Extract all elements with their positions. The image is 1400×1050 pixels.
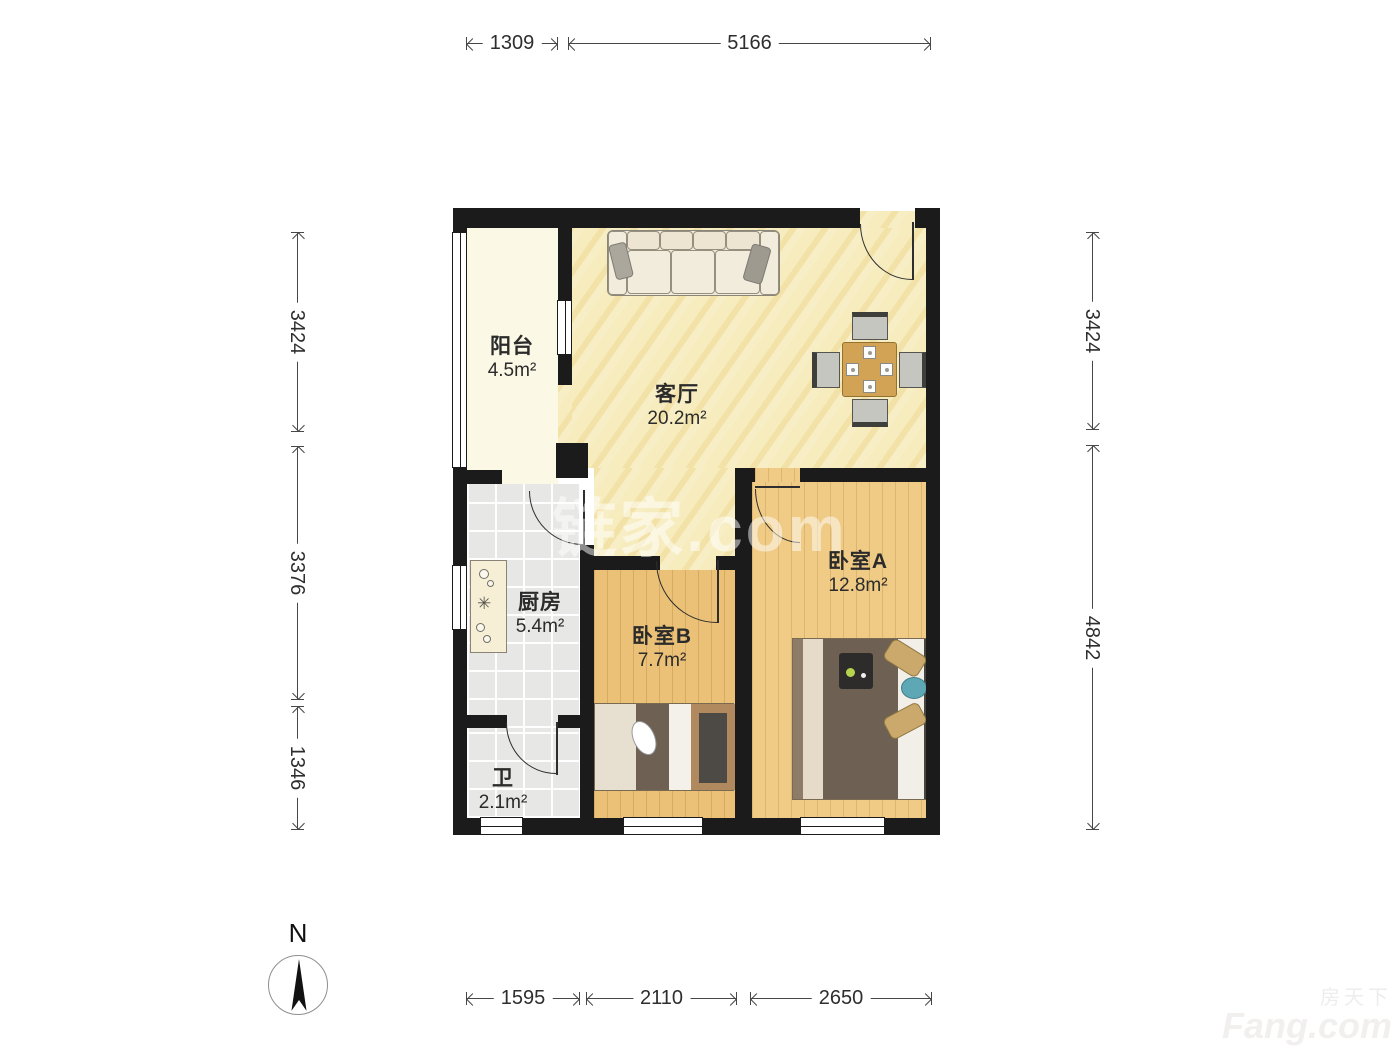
dining-chair-top <box>852 312 888 340</box>
window <box>623 817 703 835</box>
wall <box>594 556 660 570</box>
dining-chair-right <box>899 352 927 388</box>
dining-table <box>842 342 897 397</box>
bedroom-b-door-leaf <box>717 560 719 623</box>
dimension-value: 2650 <box>812 988 871 1008</box>
room-label-bedroom-a: 卧室A 12.8m² <box>828 545 888 597</box>
wall <box>926 208 940 835</box>
sink-icon <box>479 569 489 579</box>
room-label-balcony: 阳台 4.5m² <box>488 330 537 382</box>
room-label-bathroom: 卫 2.1m² <box>479 762 528 814</box>
room-name: 卧室B <box>632 620 692 650</box>
bed-blanket-fold <box>803 639 823 799</box>
bedroom-a-door-leaf <box>755 486 800 488</box>
dimension-value: 4842 <box>1082 608 1102 667</box>
watermark-bottom-right: 房天下 Fang.com <box>1222 988 1392 1044</box>
room-name: 客厅 <box>647 378 706 408</box>
north-arrow-icon <box>286 959 312 1013</box>
room-name: 卫 <box>479 762 528 792</box>
dimension-value: 3376 <box>287 544 307 603</box>
window <box>480 817 523 835</box>
dining-chair-bottom <box>852 399 888 427</box>
sofa <box>607 230 780 296</box>
balcony-passage-floor <box>558 383 572 445</box>
room-name: 卧室A <box>828 545 888 575</box>
room-area: 4.5m² <box>488 360 537 382</box>
room-label-bedroom-b: 卧室B 7.7m² <box>632 620 692 672</box>
double-bed <box>792 638 933 800</box>
watermark-cn: 房天下 <box>1222 988 1392 1008</box>
wall <box>558 715 594 728</box>
bathroom-door-leaf <box>556 722 558 775</box>
sink-icon <box>487 580 494 587</box>
window <box>800 817 885 835</box>
compass: N <box>268 918 328 1015</box>
wall <box>556 443 588 478</box>
wall <box>453 208 860 228</box>
room-name: 阳台 <box>488 330 537 360</box>
kitchen-door-leaf <box>583 490 585 545</box>
bed-blanket-fold <box>595 704 636 790</box>
sink-icon <box>483 635 491 643</box>
room-area: 2.1m² <box>479 792 528 814</box>
single-bed <box>594 703 734 791</box>
dining-chair-left <box>812 352 840 388</box>
sofa-seat-cushion <box>671 250 715 294</box>
wall <box>558 355 572 385</box>
bed-sheet <box>669 704 691 790</box>
bed-footboard <box>793 639 803 799</box>
room-area: 5.4m² <box>516 616 565 638</box>
bedroom-a-door-threshold <box>755 468 800 482</box>
watermark-en: Fang.com <box>1222 1008 1392 1044</box>
floorplan-canvas: ✳ <box>0 0 1400 1050</box>
entrance-door-leaf <box>912 222 914 280</box>
stove-burner-icon: ✳ <box>477 594 491 614</box>
bed-round-cushion <box>901 677 927 699</box>
sink-icon <box>476 623 485 632</box>
wall <box>558 228 572 300</box>
dimension-value: 1346 <box>287 739 307 798</box>
bed-headboard <box>691 704 735 790</box>
dimension-value: 5166 <box>720 33 779 53</box>
wall <box>467 715 507 728</box>
wall <box>800 468 926 482</box>
sofa-seat-cushion <box>627 250 671 294</box>
place-setting <box>880 363 893 376</box>
window <box>452 565 467 630</box>
dimension-value: 1309 <box>483 33 542 53</box>
room-area: 12.8m² <box>828 575 888 597</box>
room-label-living: 客厅 20.2m² <box>647 378 706 430</box>
dimension-value: 2110 <box>633 988 690 1008</box>
window <box>557 300 572 355</box>
room-area: 7.7m² <box>632 650 692 672</box>
compass-circle <box>268 955 328 1015</box>
wall <box>735 468 752 818</box>
sofa-back-cushion <box>627 231 660 250</box>
sofa-back-cushion <box>693 231 726 250</box>
sofa-back-cushion <box>660 231 693 250</box>
wall <box>467 470 502 484</box>
dimension-value: 3424 <box>287 303 307 362</box>
wall <box>735 468 755 482</box>
place-setting <box>846 363 859 376</box>
kitchen-counter: ✳ <box>470 560 507 653</box>
place-setting <box>863 380 876 393</box>
hallway-floor <box>594 468 735 570</box>
place-setting <box>863 346 876 359</box>
room-label-kitchen: 厨房 5.4m² <box>516 586 565 638</box>
dimension-value: 3424 <box>1082 302 1102 361</box>
room-name: 厨房 <box>516 586 565 616</box>
north-label: N <box>268 918 328 949</box>
window <box>452 232 467 468</box>
room-area: 20.2m² <box>647 408 706 430</box>
bed-tray <box>839 653 873 689</box>
dimension-value: 1595 <box>494 988 553 1008</box>
wall <box>580 545 594 818</box>
